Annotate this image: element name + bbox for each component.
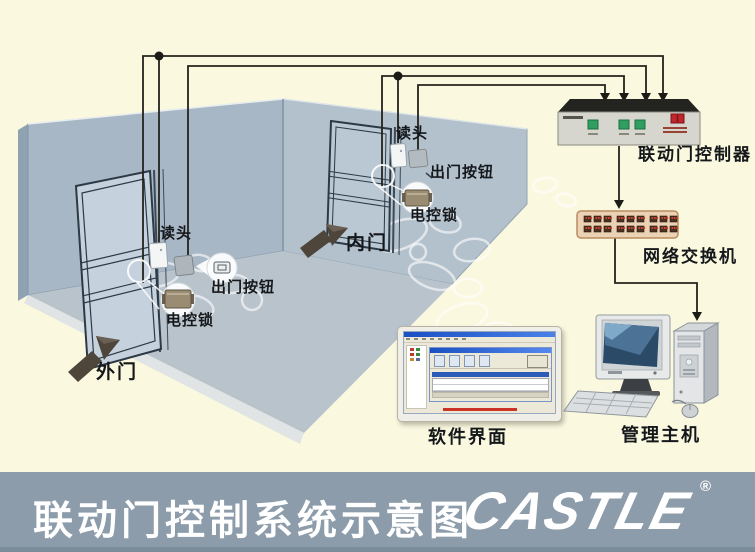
software-status-text <box>443 408 517 411</box>
software-dialog-window <box>429 347 552 402</box>
diagram-title: 联动门控制系统示意图 <box>33 488 473 546</box>
dialog-button <box>527 355 548 368</box>
software-app-window <box>403 331 556 414</box>
outer-door <box>76 169 168 369</box>
inner-door-label: 内门 <box>346 234 388 253</box>
outer-reader-label: 读头 <box>160 226 192 241</box>
outer-card-reader <box>149 242 168 268</box>
software-dialog-toolbar <box>430 353 551 369</box>
tree-item-dot <box>416 348 420 351</box>
footer-banner: 联动门控制系统示意图 CASTLE ® <box>0 472 755 552</box>
toolbar-icon <box>434 355 445 367</box>
software-table-rows <box>432 378 549 392</box>
tree-item-dot <box>410 358 414 361</box>
tree-item-dot <box>416 358 420 361</box>
inner-lock-label: 电控锁 <box>410 208 458 223</box>
tree-item-dot <box>416 353 420 356</box>
computer-keyboard <box>564 391 658 417</box>
management-host <box>564 315 718 418</box>
controller-power-switch <box>671 114 684 123</box>
network-switch <box>577 211 678 238</box>
software-table-scrollbar <box>432 392 549 398</box>
outer-electric-lock <box>162 290 194 308</box>
management-host-label: 管理主机 <box>621 426 701 444</box>
tree-item-dot <box>410 348 414 351</box>
tree-item-dot <box>410 353 414 356</box>
computer-monitor <box>596 315 670 396</box>
outer-lock-label: 电控锁 <box>166 313 214 328</box>
toolbar-icon <box>464 355 475 367</box>
brand-logo-text: CASTLE <box>458 481 697 542</box>
software-table-header <box>432 372 549 377</box>
network-switch-label: 网络交换机 <box>643 248 738 265</box>
outer-exit-button-device <box>174 255 194 276</box>
inner-exit-button-device <box>408 149 428 168</box>
registered-trademark-icon: ® <box>700 478 711 495</box>
outer-exit-button-label: 出门按钮 <box>211 280 275 295</box>
software-ui-label: 软件界面 <box>428 428 508 446</box>
inner-exit-button-label: 出门按钮 <box>430 165 494 180</box>
toolbar-icon <box>449 355 460 367</box>
outer-door-label: 外门 <box>96 363 138 382</box>
diagram-canvas: 读头 出门按钮 电控锁 读头 出门按钮 电控锁 外门 内门 联动门控制器 网络交… <box>0 0 755 552</box>
toolbar-icon <box>479 355 490 367</box>
controller-top <box>558 99 700 112</box>
computer-tower <box>674 323 718 403</box>
software-tree-panel <box>406 345 427 409</box>
left-wall-edge <box>18 124 28 301</box>
inner-card-reader <box>390 143 407 167</box>
brand-logo: CASTLE ® <box>465 478 711 542</box>
inner-electric-lock <box>402 190 432 206</box>
door-controller <box>558 99 700 145</box>
software-app-menubar <box>404 337 555 343</box>
controller-label: 联动门控制器 <box>638 146 752 163</box>
inner-reader-label: 读头 <box>396 126 428 141</box>
software-screenshot-card <box>397 326 562 422</box>
